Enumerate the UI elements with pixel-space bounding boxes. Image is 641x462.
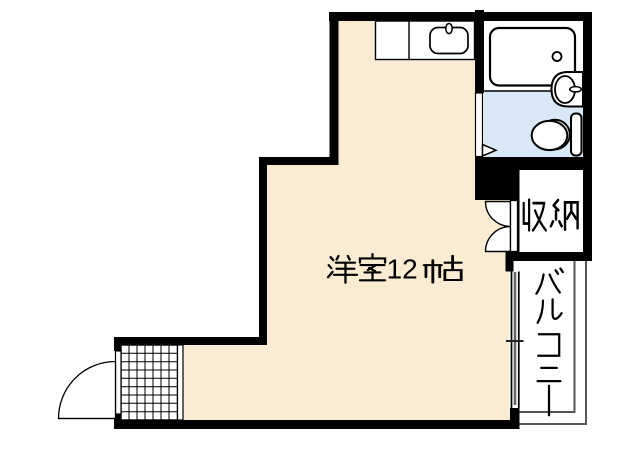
svg-text:12: 12 xyxy=(387,254,418,285)
